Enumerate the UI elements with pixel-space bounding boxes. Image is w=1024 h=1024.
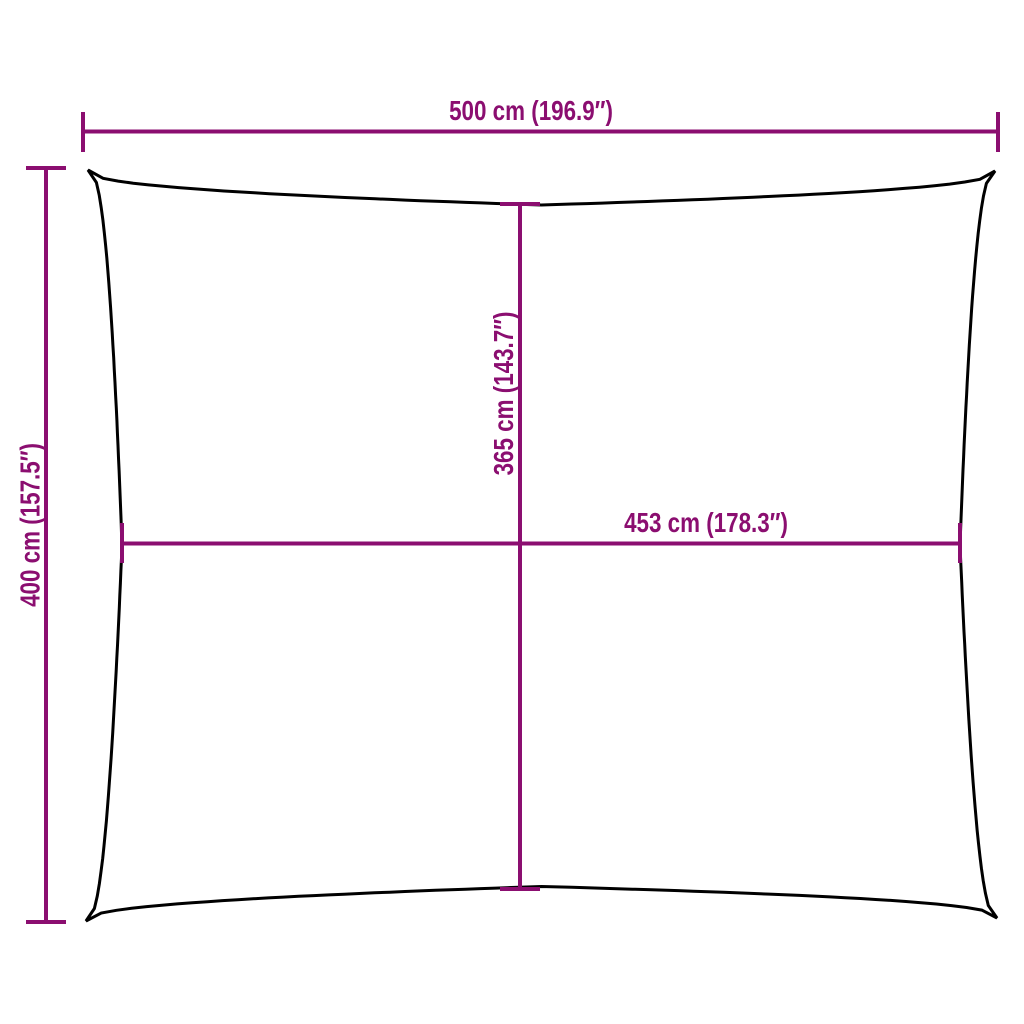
svg-text:453 cm (178.3″): 453 cm (178.3″) [624,508,788,539]
svg-text:500 cm (196.9″): 500 cm (196.9″) [449,96,613,127]
svg-text:365 cm (143.7″): 365 cm (143.7″) [489,312,520,476]
svg-text:400 cm (157.5″): 400 cm (157.5″) [15,443,46,607]
